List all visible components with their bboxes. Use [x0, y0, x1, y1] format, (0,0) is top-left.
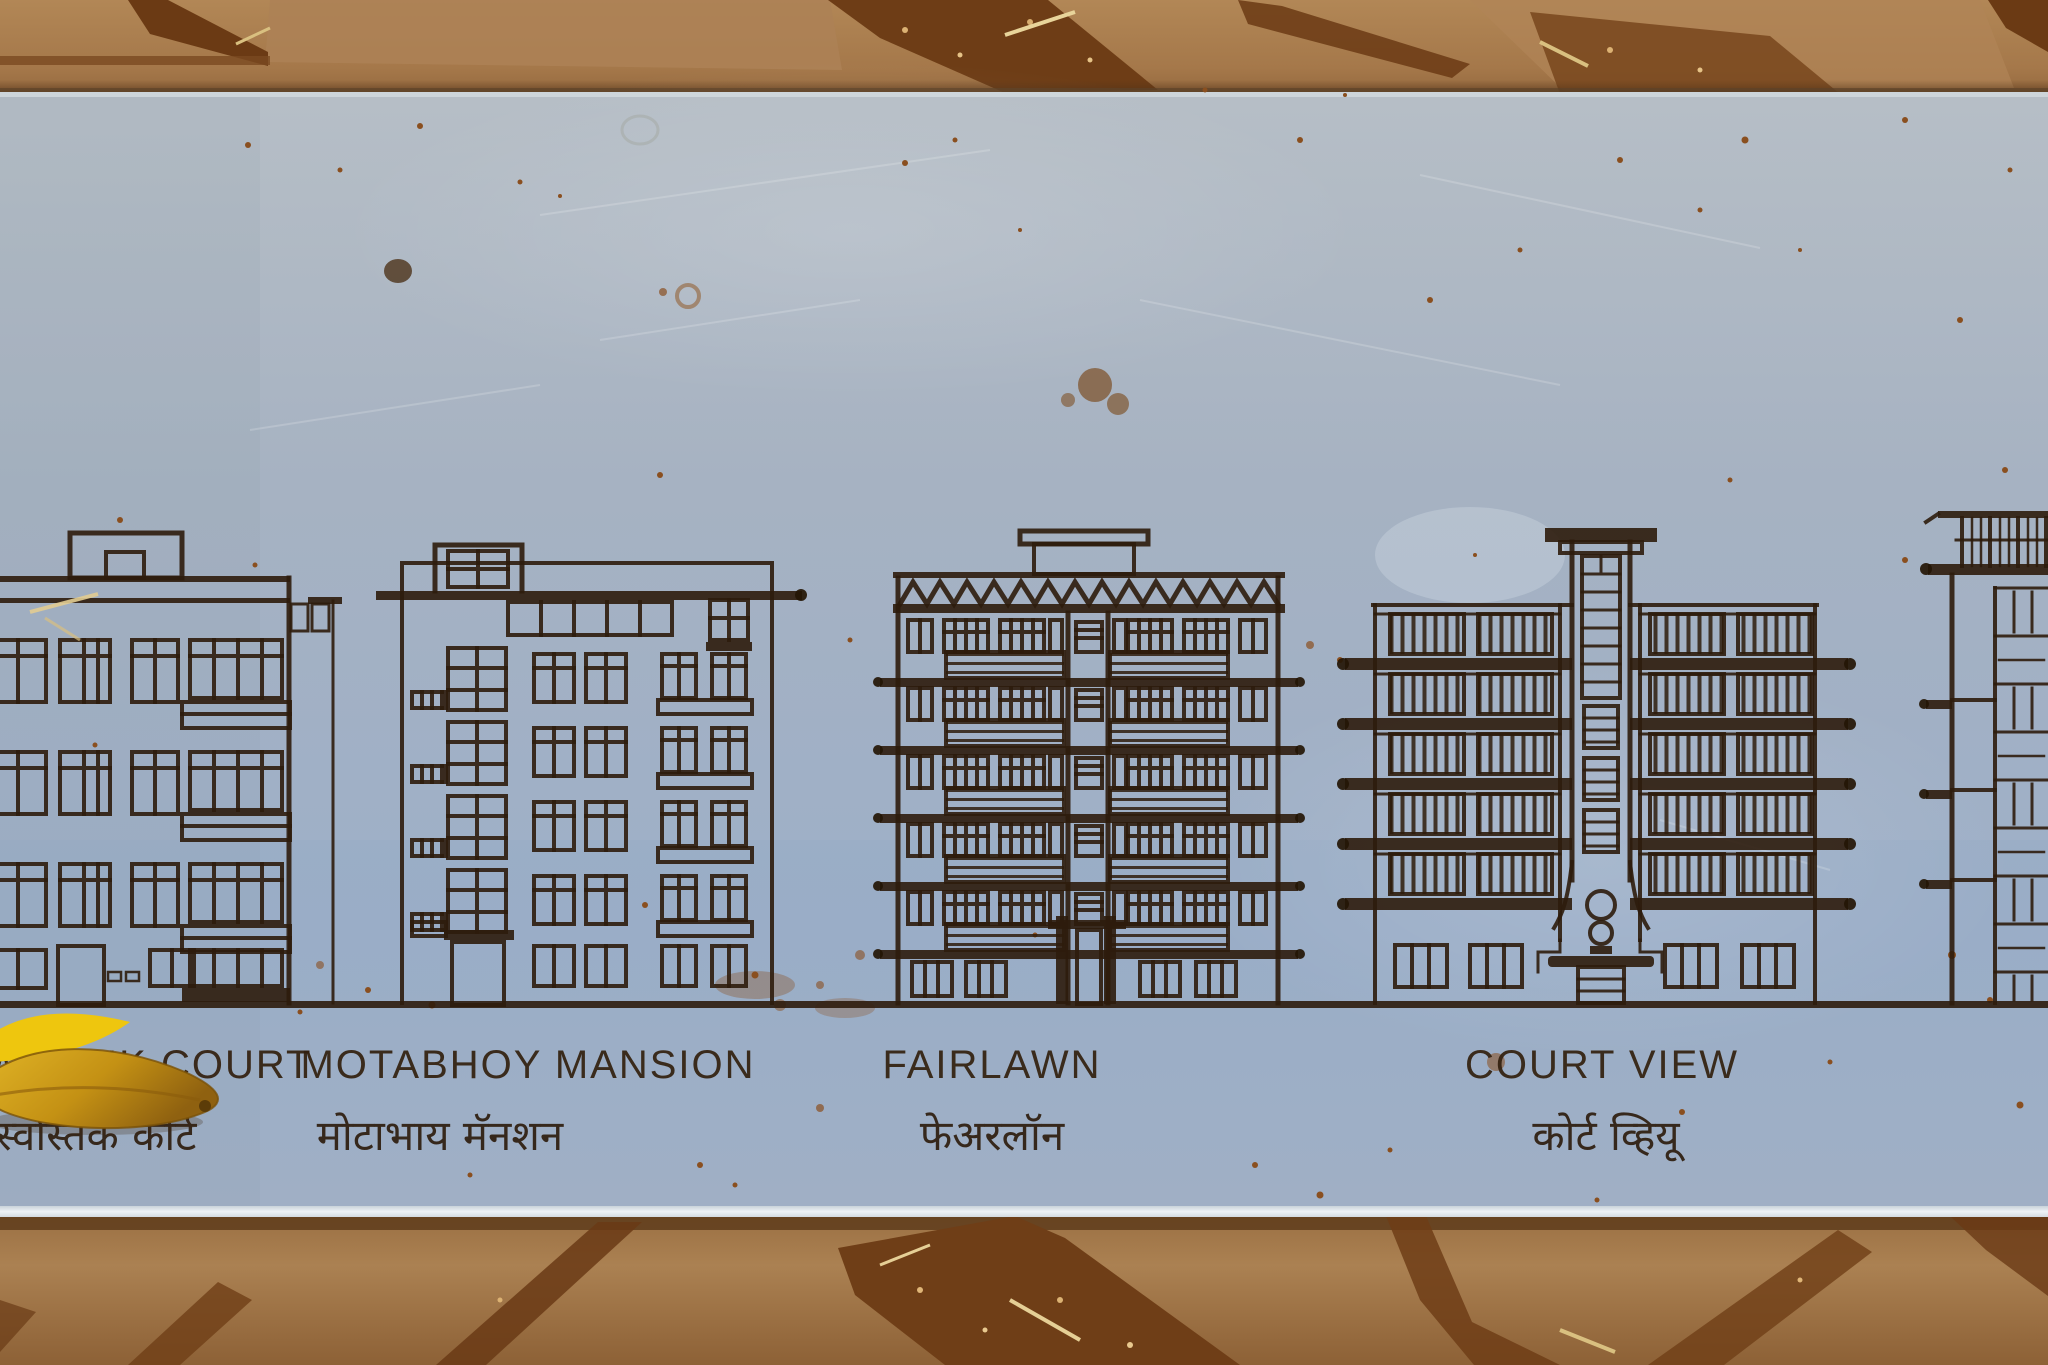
ground-baseline	[0, 1001, 2048, 1008]
label-fairlawn-en: FAIRLAWN	[883, 1043, 1102, 1087]
plaque-bottom-bevel	[0, 1206, 2048, 1217]
label-motabhoy-mansion-mr: मोटाभाय मॅनशन	[317, 1111, 564, 1160]
pavement-bottom	[0, 1212, 2048, 1365]
photo-heritage-plaque: WASTIK COURT स्वस्तिक कोर्ट MOTABHOY MAN…	[0, 0, 2048, 1365]
label-court-view-en: COURT VIEW	[1465, 1043, 1739, 1087]
label-motabhoy-mansion-en: MOTABHOY MANSION	[300, 1043, 755, 1087]
label-fairlawn-mr: फेअरलॉन	[920, 1111, 1065, 1160]
label-court-view-mr: कोर्ट व्हियू	[1532, 1111, 1685, 1162]
